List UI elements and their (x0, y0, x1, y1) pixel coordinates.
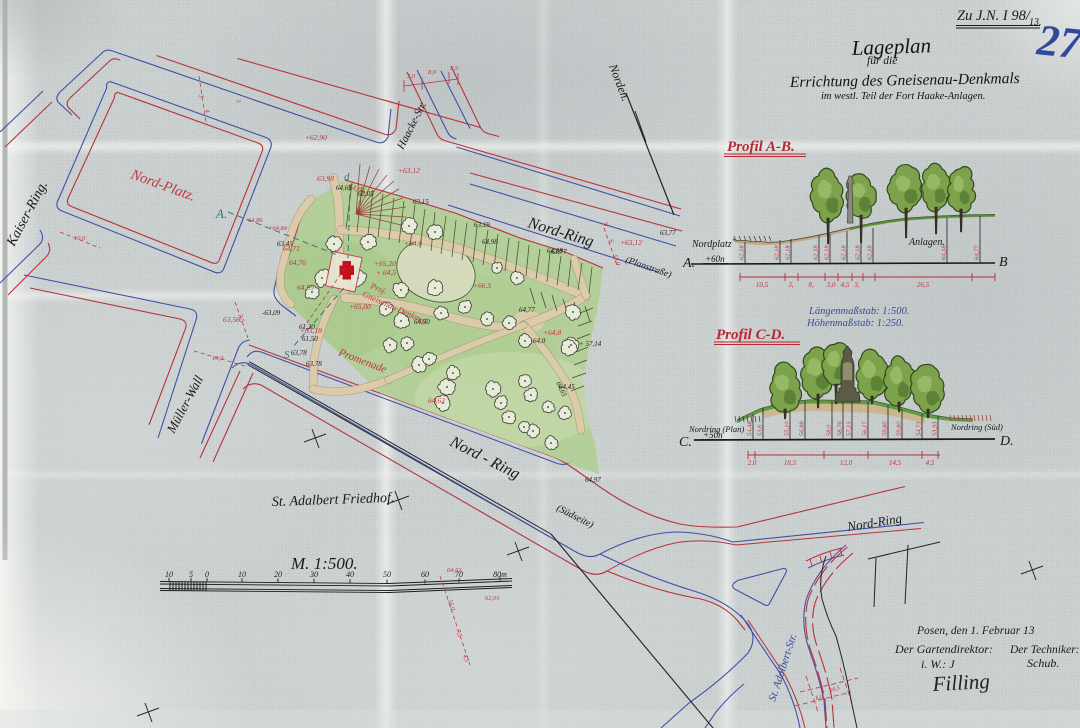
svg-text:Filling: Filling (931, 669, 990, 696)
svg-text:61,50: 61,50 (302, 335, 318, 343)
svg-text:für die: für die (867, 55, 897, 67)
svg-text:64,88: 64,88 (547, 247, 563, 255)
svg-text:14,5: 14,5 (889, 459, 902, 467)
svg-text:B: B (999, 255, 1008, 270)
svg-text:64,77: 64,77 (519, 306, 535, 314)
svg-text:54,73: 54,73 (916, 421, 923, 436)
svg-text:3,: 3, (853, 281, 860, 289)
svg-text:10,0: 10,0 (212, 355, 224, 362)
svg-text:a: a (604, 219, 608, 228)
svg-text:64,0: 64,0 (533, 337, 546, 345)
svg-text:61,30: 61,30 (299, 323, 315, 331)
svg-text:Anlagen.: Anlagen. (908, 237, 945, 248)
svg-text:+64,84: +64,84 (268, 225, 288, 232)
svg-text:63,19: 63,19 (474, 221, 490, 229)
svg-text:4,5: 4,5 (926, 459, 935, 467)
svg-text:0: 0 (205, 570, 209, 579)
svg-text:63,15: 63,15 (413, 198, 429, 206)
svg-text:Profil A-B.: Profil A-B. (727, 139, 795, 155)
svg-text:20: 20 (274, 570, 282, 579)
svg-text:+63,12: +63,12 (620, 238, 642, 247)
svg-text:+60n: +60n (705, 254, 725, 264)
svg-text:56,88: 56,88 (799, 421, 806, 436)
svg-text:Nordring (Plan): Nordring (Plan) (688, 424, 744, 434)
svg-text:Nordring (Süd): Nordring (Süd) (950, 422, 1003, 432)
svg-text:50: 50 (383, 570, 391, 579)
svg-text:62,18: 62,18 (774, 245, 781, 260)
svg-text:64,50: 64,50 (414, 318, 430, 326)
svg-text:A.: A. (682, 256, 695, 271)
svg-text:56,17: 56,17 (862, 421, 869, 436)
svg-text:62,18: 62,18 (841, 245, 848, 260)
svg-text:64,63: 64,63 (428, 396, 445, 405)
svg-text:53,6: 53,6 (757, 424, 764, 436)
svg-text:64,45: 64,45 (559, 383, 575, 391)
svg-text:d: d (344, 171, 350, 183)
svg-text:54,48: 54,48 (747, 421, 754, 436)
svg-text:2,0: 2,0 (748, 459, 757, 467)
svg-text:3,: 3, (787, 281, 794, 289)
svg-text:Längenmaßstab: 1:500.: Längenmaßstab: 1:500. (808, 306, 909, 317)
svg-text:D.: D. (999, 434, 1014, 449)
svg-text:4,5: 4,5 (841, 281, 850, 289)
svg-text:10,0: 10,0 (74, 235, 86, 242)
svg-text:5: 5 (189, 570, 193, 579)
svg-text:10,5: 10,5 (756, 281, 769, 289)
svg-text:62,18: 62,18 (785, 245, 792, 260)
svg-text:8,0: 8,0 (428, 69, 437, 76)
svg-text:55,10: 55,10 (784, 421, 791, 436)
svg-text:63,77: 63,77 (660, 229, 676, 237)
svg-text:64,86: 64,86 (248, 217, 263, 224)
svg-text:63,78: 63,78 (306, 360, 322, 368)
svg-text:59,80: 59,80 (882, 421, 889, 436)
svg-text:64,99: 64,99 (297, 283, 314, 292)
svg-text:+ 64,5: + 64,5 (376, 268, 396, 277)
svg-text:64,77: 64,77 (974, 245, 981, 260)
svg-text:58,76: 58,76 (837, 421, 844, 436)
svg-text:80m: 80m (493, 570, 507, 579)
svg-text:Höhenmaßstab: 1:250.: Höhenmaßstab: 1:250. (806, 318, 904, 329)
svg-text:64,63: 64,63 (447, 567, 462, 574)
svg-text:12,0: 12,0 (840, 459, 853, 467)
svg-text:64,76: 64,76 (289, 258, 306, 267)
svg-text:3,5: 3,5 (449, 65, 459, 72)
svg-text:18,5: 18,5 (784, 459, 797, 467)
svg-text:62,18: 62,18 (813, 245, 820, 260)
svg-text:+62,90: +62,90 (305, 133, 327, 142)
svg-text:C.: C. (679, 435, 692, 450)
svg-text:-63,09: -63,09 (262, 309, 281, 317)
svg-text:64,98: 64,98 (482, 238, 498, 246)
svg-text:8,: 8, (808, 281, 814, 289)
svg-text:27: 27 (1034, 15, 1080, 69)
svg-text:62,18: 62,18 (739, 245, 746, 260)
svg-text:63,98: 63,98 (317, 174, 334, 183)
svg-text:i. W.: J: i. W.: J (921, 657, 955, 671)
svg-text:26,5: 26,5 (917, 281, 930, 289)
svg-text:10: 10 (238, 570, 246, 579)
svg-text:+66,5: +66,5 (473, 281, 491, 290)
svg-text:3,0: 3,0 (406, 73, 416, 80)
svg-text:Zu J.N. I 98/: Zu J.N. I 98/ (957, 8, 1032, 24)
svg-text:64,18: 64,18 (941, 245, 948, 260)
svg-text:58,0: 58,0 (826, 424, 833, 436)
svg-text:+63,12: +63,12 (398, 166, 420, 175)
svg-text:Nordplatz: Nordplatz (691, 239, 732, 250)
svg-text:59,80: 59,80 (896, 421, 903, 436)
svg-text:Schub.: Schub. (1027, 656, 1059, 670)
svg-text:+64,8: +64,8 (543, 328, 561, 337)
svg-text:im westl. Teil der Fort Haake-: im westl. Teil der Fort Haake-Anlagen. (821, 91, 985, 102)
svg-text:S: S (284, 349, 290, 361)
svg-text:A.: A. (215, 206, 227, 221)
svg-text:62,05: 62,05 (358, 190, 374, 198)
svg-text:M. 1:500.: M. 1:500. (290, 554, 358, 573)
svg-text:64,65: 64,65 (336, 184, 352, 192)
svg-text:62,18: 62,18 (867, 245, 874, 260)
svg-text:Profil C-D.: Profil C-D. (716, 327, 785, 343)
svg-text:62,01: 62,01 (485, 595, 500, 602)
svg-text:+64,0: +64,0 (404, 239, 422, 248)
svg-text:3,0: 3,0 (826, 281, 836, 289)
svg-text:53,93: 53,93 (932, 421, 939, 436)
svg-text:63,78: 63,78 (291, 349, 307, 357)
svg-text:57,15: 57,15 (846, 421, 853, 436)
svg-text:Der Techniker:: Der Techniker: (1009, 644, 1080, 656)
svg-text:62,18: 62,18 (855, 245, 862, 260)
svg-text:Der Gartendirektor:: Der Gartendirektor: (894, 642, 993, 656)
svg-text:63,45: 63,45 (277, 240, 293, 248)
svg-text:+65,00: +65,00 (349, 302, 371, 311)
svg-text:+65,20: +65,20 (374, 259, 396, 268)
svg-text:60: 60 (421, 570, 429, 579)
svg-text:64,97: 64,97 (585, 476, 601, 484)
svg-text:Posen, den 1. Februar 13: Posen, den 1. Februar 13 (916, 625, 1035, 637)
svg-text:10: 10 (165, 570, 173, 579)
svg-text:+ 57,14: + 57,14 (579, 340, 602, 348)
svg-text:62,18: 62,18 (824, 245, 831, 260)
